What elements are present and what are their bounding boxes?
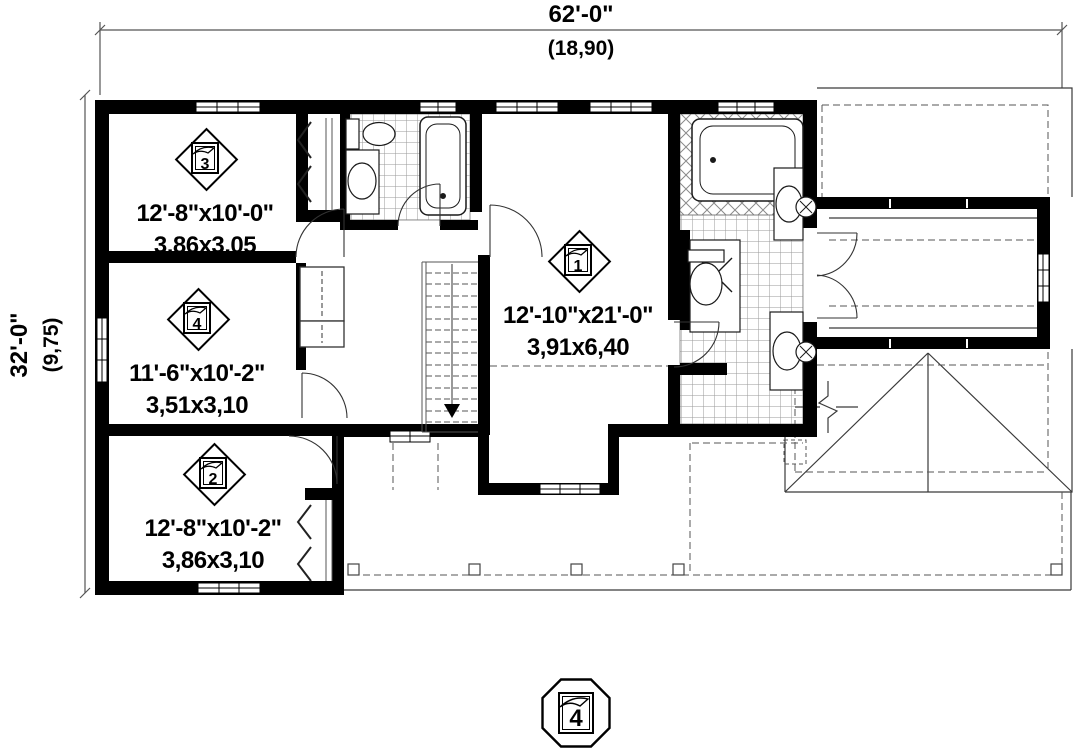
dim-width-imperial: 62'-0" xyxy=(548,1,613,29)
column-fixture xyxy=(796,342,816,362)
room-label-bedroom4: 4 11'-6"x10'-2" 3,51x3,10 xyxy=(67,288,327,422)
window xyxy=(1038,254,1049,302)
room-number: 3 xyxy=(191,156,219,174)
dim-height-metric: (9,75) xyxy=(40,318,64,373)
wall-ticks xyxy=(890,199,967,348)
floor-number: 4 xyxy=(558,705,594,733)
window xyxy=(196,102,260,112)
room-label-bedroom3: 3 12'-8"x10'-0" 3,86x3,05 xyxy=(75,128,335,262)
porch-posts xyxy=(348,564,1062,575)
vanity-sink-hall xyxy=(346,150,379,214)
window xyxy=(590,102,652,112)
room-number: 2 xyxy=(199,471,227,489)
room-size-imperial: 12'-8"x10'-2" xyxy=(83,513,343,545)
page-curl-icon xyxy=(565,246,589,258)
room-size-imperial: 12'-8"x10'-0" xyxy=(75,198,335,230)
window xyxy=(718,102,774,112)
page-curl-icon xyxy=(184,304,208,316)
column-fixture xyxy=(796,197,816,217)
window xyxy=(540,484,600,494)
floor-plan: 62'-0" (18,90) 32'-0" (9,75) 3 12'-8"x10… xyxy=(0,0,1080,753)
room-label-master: 1 12'-10"x21'-0" 3,91x6,40 xyxy=(438,230,718,364)
room-marker-1: 1 xyxy=(548,230,608,290)
room-size-imperial: 11'-6"x10'-2" xyxy=(67,358,327,390)
window xyxy=(390,431,430,442)
room-marker-4: 4 xyxy=(167,288,227,348)
window xyxy=(496,102,558,112)
dim-width-metric: (18,90) xyxy=(548,37,615,61)
room-size-imperial: 12'-10"x21'-0" xyxy=(438,300,718,332)
double-doors-bonus-room xyxy=(817,233,857,318)
room-number: 4 xyxy=(183,316,211,334)
break-line-symbol xyxy=(819,381,837,433)
room-size-metric: 3,91x6,40 xyxy=(438,332,718,364)
room-size-metric: 3,86x3,10 xyxy=(83,545,343,577)
page-curl-icon xyxy=(192,144,216,156)
room-label-bedroom2: 2 12'-8"x10'-2" 3,86x3,10 xyxy=(83,443,343,577)
window xyxy=(198,583,260,593)
dim-height-imperial: 32'-0" xyxy=(6,312,34,377)
floor-number-badge: 4 xyxy=(540,677,612,749)
bathtub-hall xyxy=(420,117,466,215)
room-marker-2: 2 xyxy=(183,443,243,503)
window xyxy=(420,102,456,112)
room-marker-3: 3 xyxy=(175,128,235,188)
room-number: 1 xyxy=(564,258,592,276)
room-size-metric: 3,51x3,10 xyxy=(67,390,327,422)
room-size-metric: 3,86x3,05 xyxy=(75,230,335,262)
page-curl-icon xyxy=(200,459,224,471)
